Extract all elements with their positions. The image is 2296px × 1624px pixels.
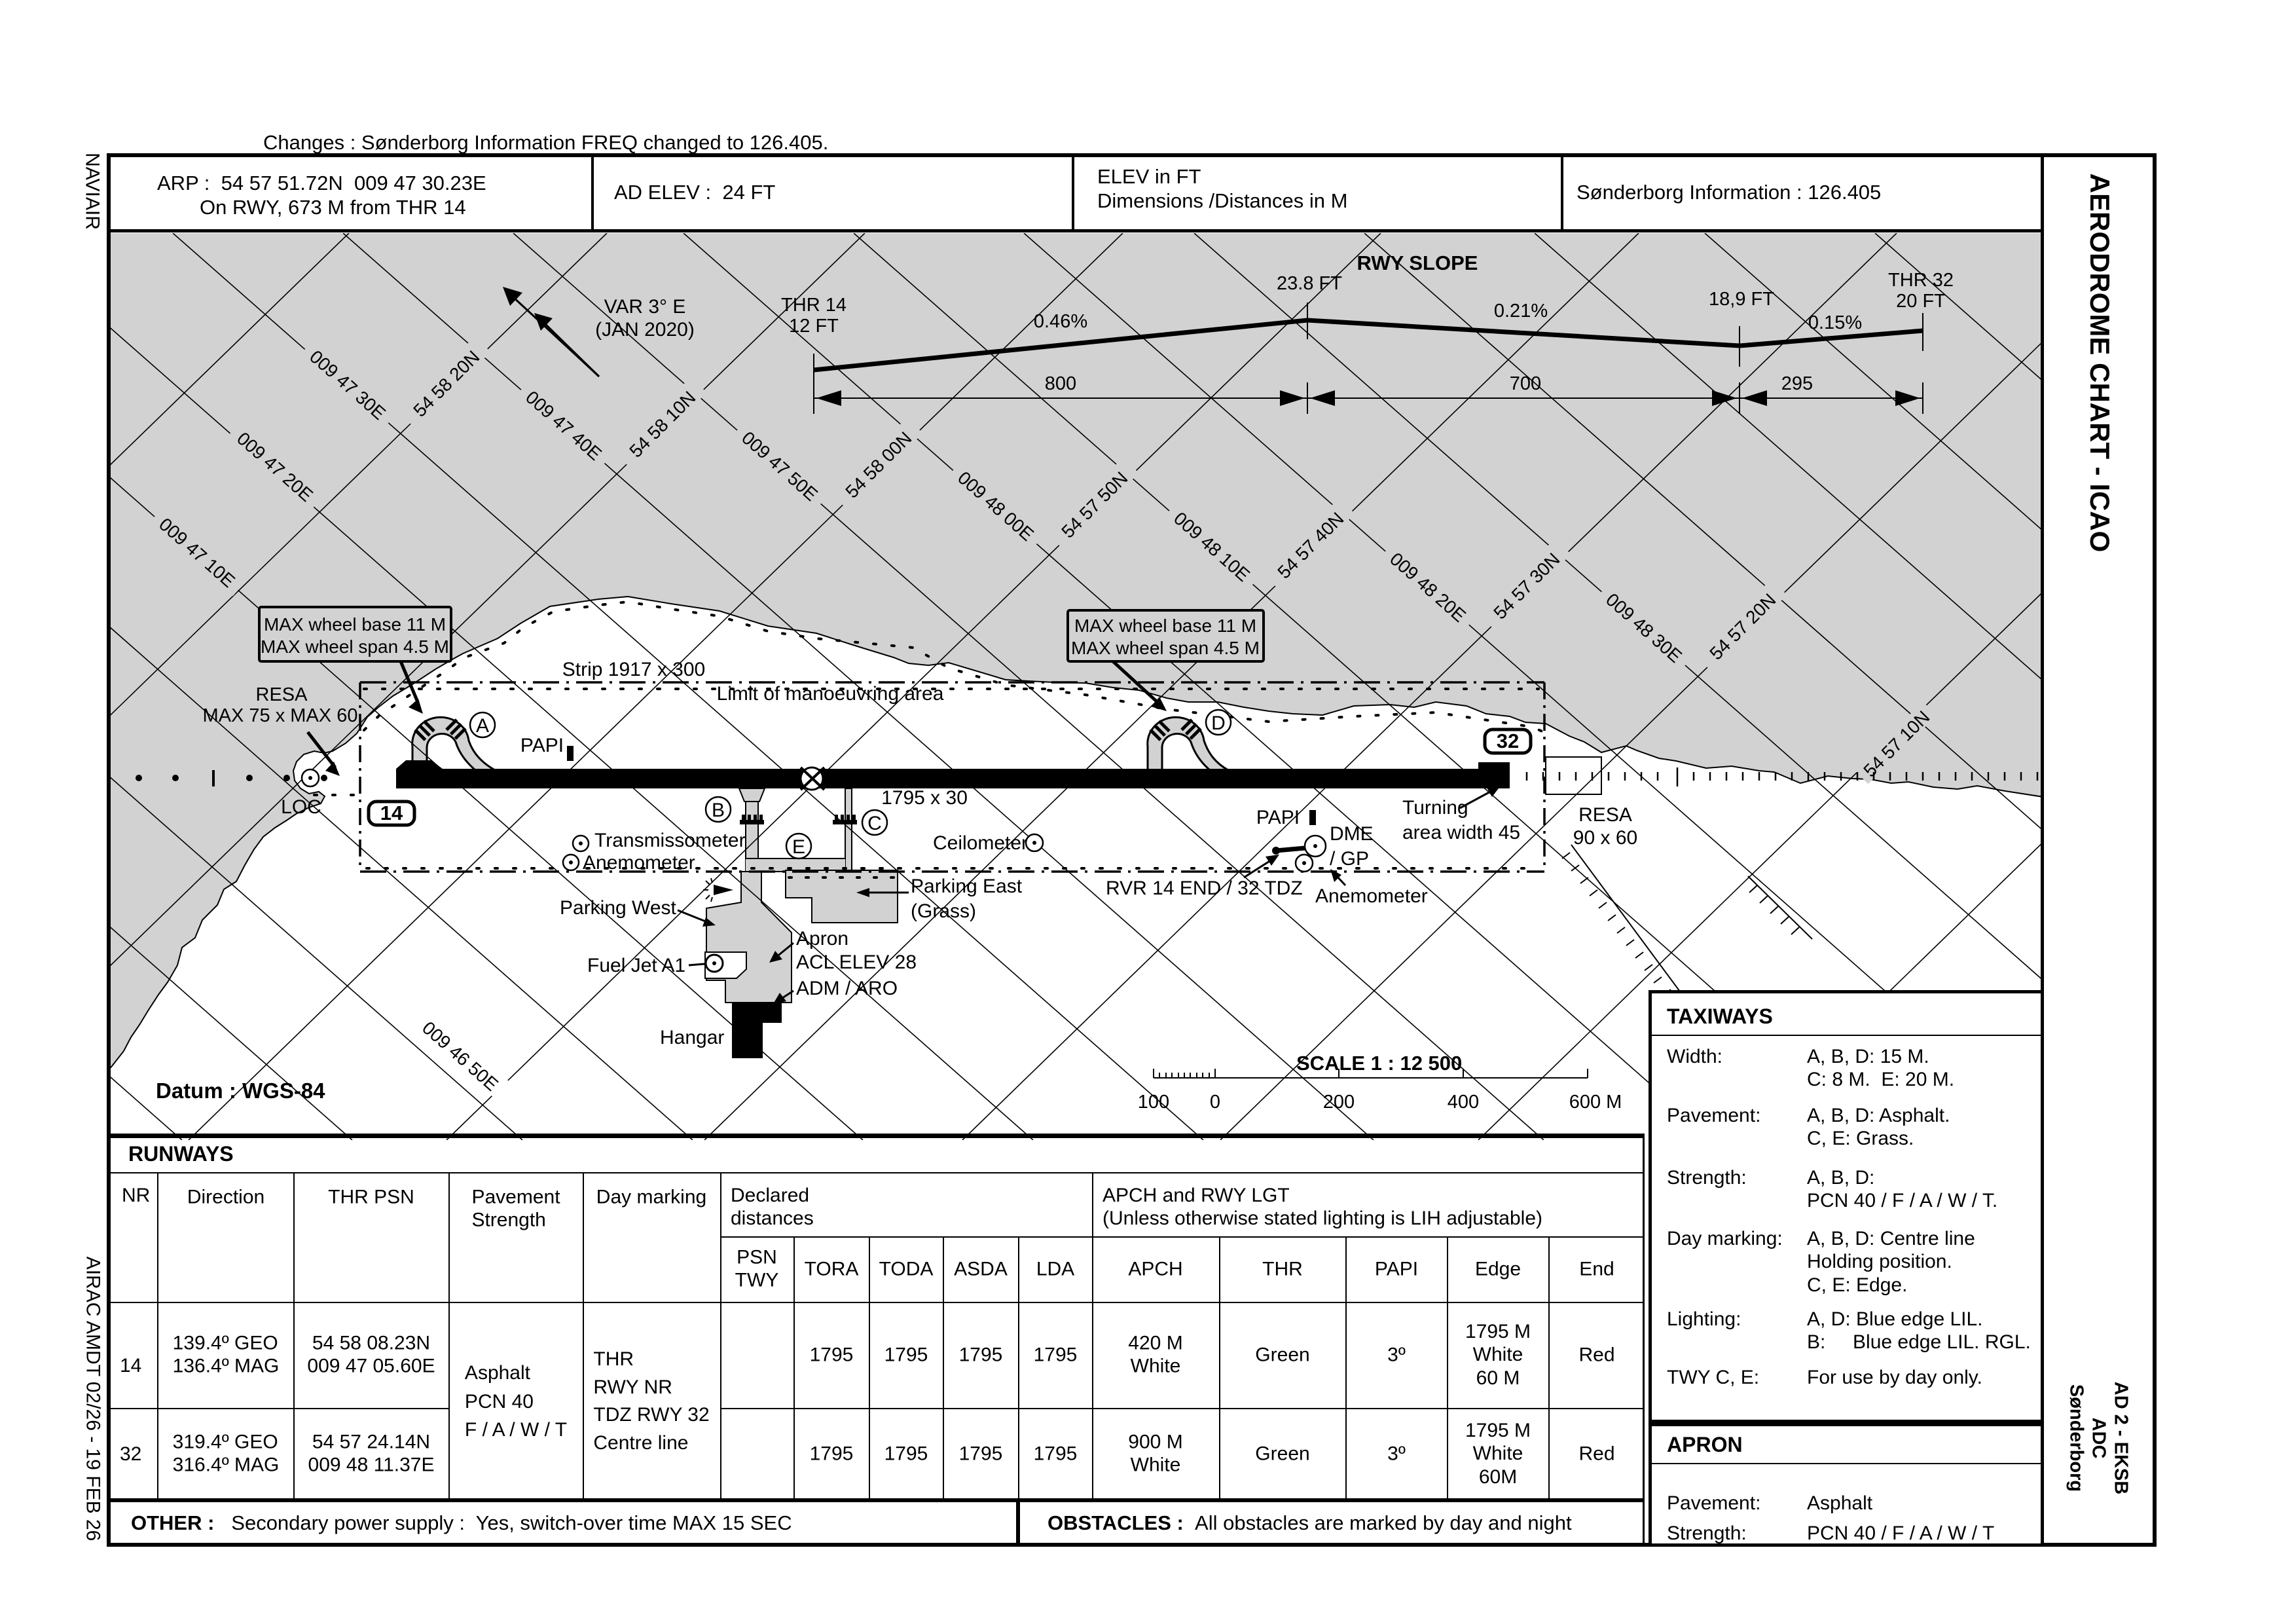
svg-text:20 FT: 20 FT [1896,291,1946,312]
svg-text:0.15%: 0.15% [1808,312,1862,333]
svg-text:90 x 60: 90 x 60 [1573,827,1637,849]
svg-text:800: 800 [1045,373,1076,394]
svg-text:RESA: RESA [1578,804,1632,826]
svg-text:Ceilometer: Ceilometer [933,832,1028,854]
svg-text:E: E [792,836,805,858]
svg-text:Fuel Jet A1: Fuel Jet A1 [587,955,685,976]
svg-text:(Grass): (Grass) [911,900,976,922]
svg-text:Parking West: Parking West [560,897,677,919]
svg-text:LOC: LOC [281,796,321,818]
svg-text:18,9 FT: 18,9 FT [1709,289,1774,310]
svg-text:12 FT: 12 FT [789,316,839,337]
svg-text:MAX wheel span 4.5 M: MAX wheel span 4.5 M [261,637,449,657]
svg-text:THR 32: THR 32 [1888,270,1954,291]
svg-text:Anemometer: Anemometer [1315,885,1428,907]
svg-text:C: C [867,813,882,834]
svg-text:23.8 FT: 23.8 FT [1277,273,1342,294]
svg-text:MAX wheel base 11 M: MAX wheel base 11 M [1074,616,1256,636]
svg-text:Turning: Turning [1402,797,1468,819]
svg-text:295: 295 [1781,373,1813,394]
svg-text:200: 200 [1323,1092,1355,1113]
svg-text:THR 14: THR 14 [781,295,847,316]
svg-text:Apron: Apron [796,928,848,950]
svg-text:A: A [476,715,489,737]
svg-text:Limit of manoeuvring area: Limit of manoeuvring area [717,683,944,705]
svg-text:area width 45: area width 45 [1402,822,1520,843]
svg-text:Datum : WGS-84: Datum : WGS-84 [156,1079,325,1103]
svg-text:MAX 75 x MAX 60: MAX 75 x MAX 60 [203,705,358,726]
svg-text:DME: DME [1330,823,1374,845]
svg-text:0.46%: 0.46% [1034,311,1087,332]
svg-text:0.21%: 0.21% [1494,301,1548,322]
svg-text:RESA: RESA [256,684,308,705]
svg-text:600 M: 600 M [1569,1092,1622,1113]
svg-text:400: 400 [1448,1092,1479,1113]
svg-text:ACL ELEV 28: ACL ELEV 28 [796,951,917,973]
svg-text:14: 14 [380,802,403,824]
svg-text:B: B [712,800,725,821]
svg-text:VAR 3° E: VAR 3° E [604,296,686,318]
svg-text:RVR 14 END / 32 TDZ: RVR 14 END / 32 TDZ [1106,877,1303,899]
svg-text:/ GP: / GP [1330,848,1369,870]
svg-text:32: 32 [1497,729,1519,752]
svg-text:700: 700 [1510,373,1541,394]
svg-text:PAPI: PAPI [520,735,564,756]
svg-text:(JAN 2020): (JAN 2020) [595,319,695,341]
svg-text:Parking East: Parking East [911,876,1023,897]
svg-text:MAX wheel base 11 M: MAX wheel base 11 M [264,614,446,635]
svg-text:Hangar: Hangar [660,1027,724,1048]
svg-text:Transmissometer: Transmissometer [594,830,746,851]
svg-text:MAX wheel span 4.5 M: MAX wheel span 4.5 M [1071,638,1260,658]
svg-text:Strip 1917 x 300: Strip 1917 x 300 [562,659,705,680]
svg-text:D: D [1211,712,1226,734]
svg-text:0: 0 [1210,1092,1220,1113]
svg-text:RWY SLOPE: RWY SLOPE [1357,251,1478,274]
svg-text:PAPI: PAPI [1256,807,1300,828]
svg-text:SCALE 1 : 12 500: SCALE 1 : 12 500 [1296,1052,1462,1075]
svg-text:1795 x 30: 1795 x 30 [881,787,968,809]
svg-text:Anemometer: Anemometer [583,852,695,874]
svg-text:ADM / ARO: ADM / ARO [796,978,898,999]
svg-text:100: 100 [1138,1092,1169,1113]
